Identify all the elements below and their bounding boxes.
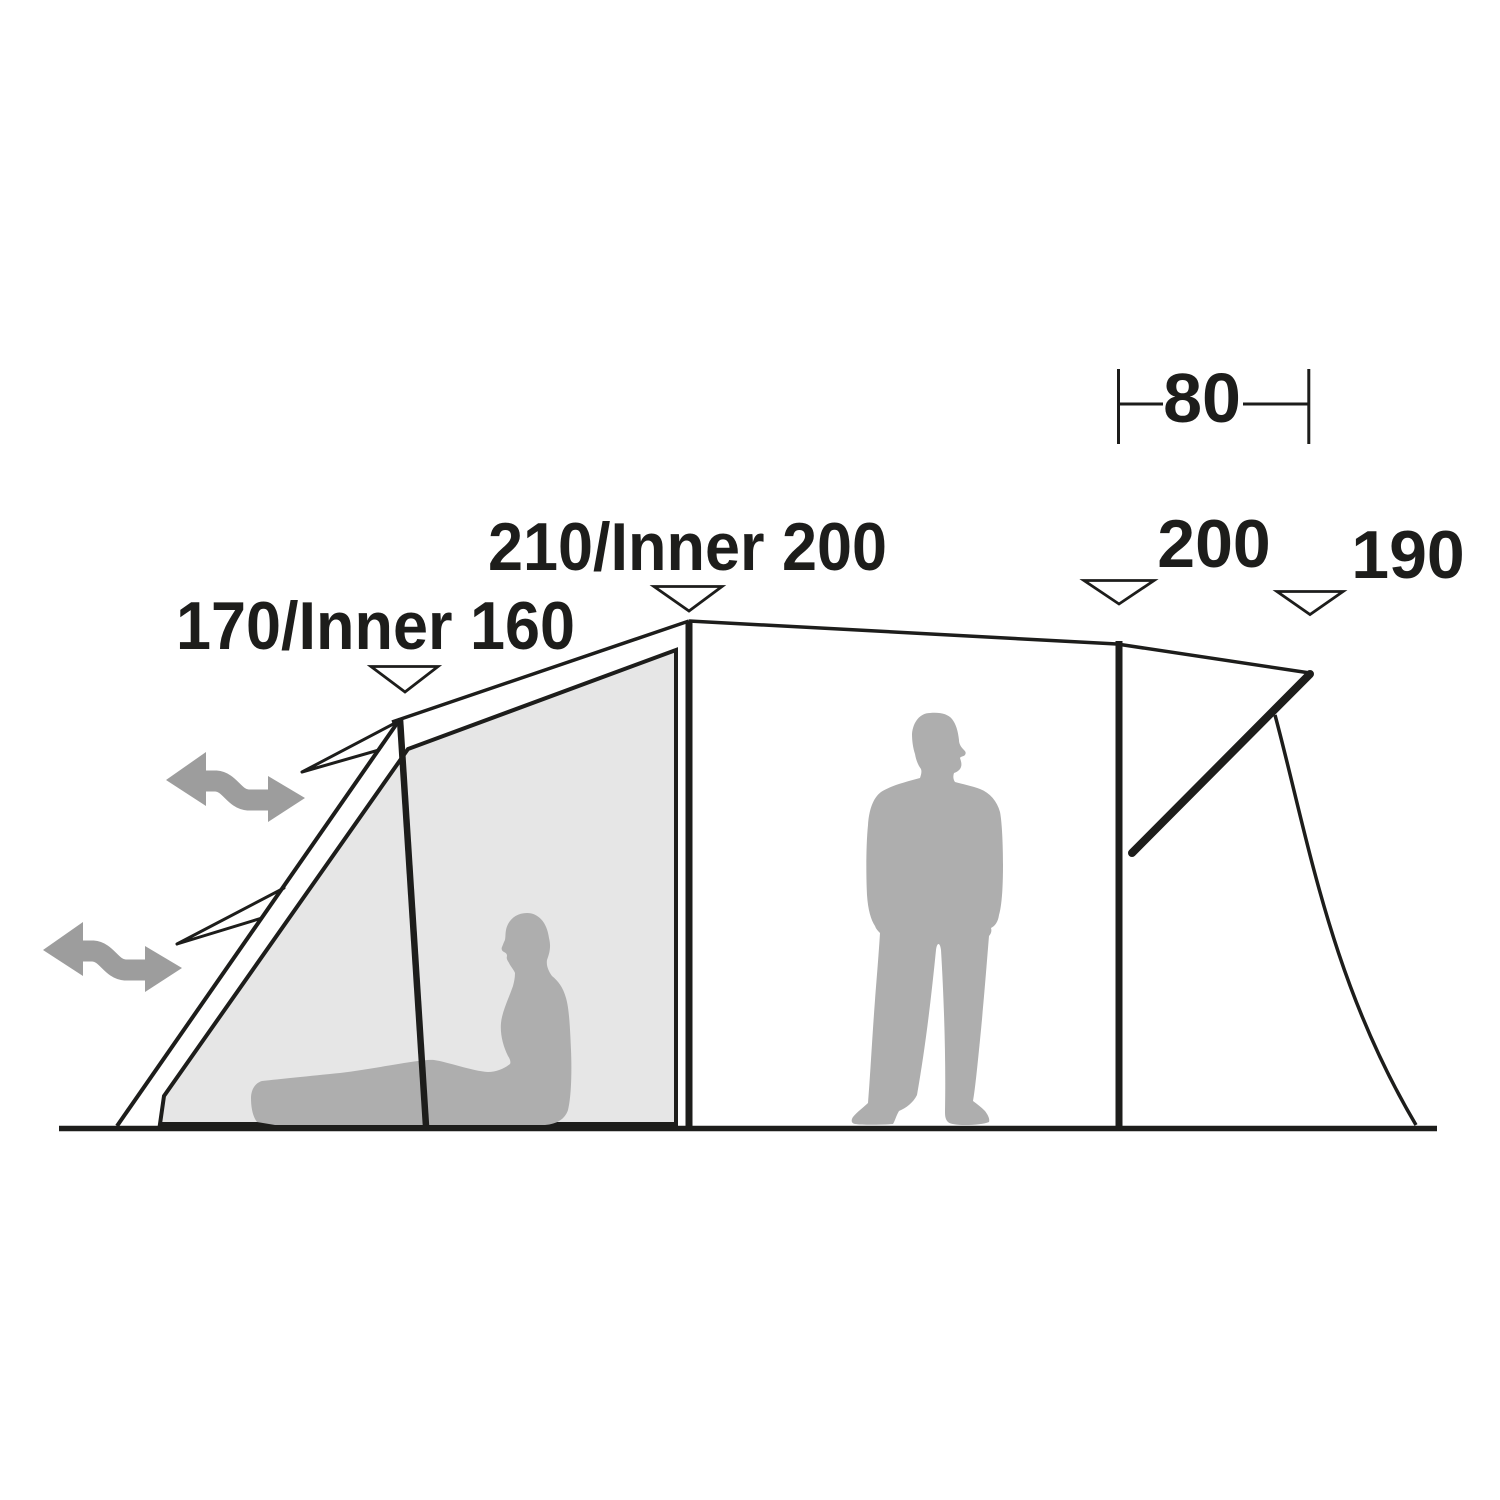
svg-text:80: 80	[1163, 359, 1241, 437]
svg-text:200: 200	[1157, 506, 1270, 582]
svg-text:210/Inner 200: 210/Inner 200	[488, 509, 887, 585]
svg-text:170/Inner 160: 170/Inner 160	[176, 588, 575, 664]
svg-text:190: 190	[1351, 517, 1464, 593]
